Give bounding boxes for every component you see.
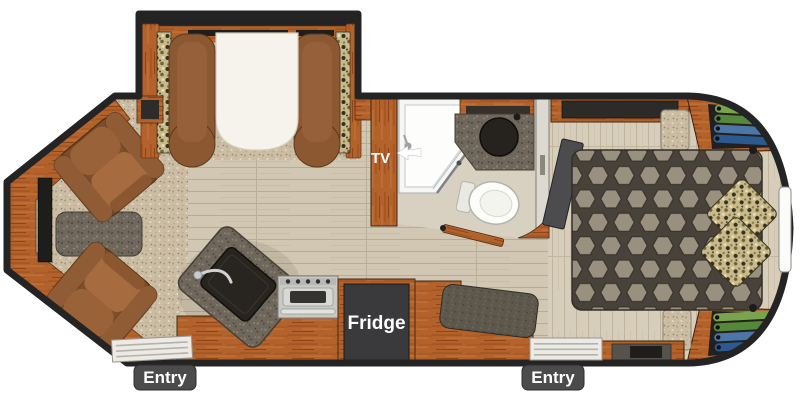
slideout-sofa <box>141 15 361 167</box>
fridge: Fridge <box>338 279 415 363</box>
pocket-wall-handle <box>540 155 545 175</box>
corner-cabinet-left <box>137 96 163 123</box>
rear-console <box>38 178 52 262</box>
entry-badge-right-label: Entry <box>531 368 575 387</box>
sofa-mattress <box>216 33 298 150</box>
entry-threshold-right <box>530 338 602 360</box>
tv-label: TV <box>371 150 390 167</box>
floor-plan-page: Fridge <box>0 0 800 400</box>
bathroom-sink <box>480 118 518 156</box>
interior: Fridge <box>0 15 798 370</box>
door-hinge-icon <box>440 225 446 231</box>
sofa-seat-left <box>169 34 215 167</box>
entry-badge-left-label: Entry <box>143 368 187 387</box>
fridge-label: Fridge <box>347 313 405 334</box>
entry-threshold-left <box>111 336 192 362</box>
sofa-arm-left <box>141 24 159 158</box>
entry-step-cabinet <box>415 281 539 361</box>
entry-badge-right: Entry <box>522 365 584 390</box>
reading-light-icon <box>749 146 757 154</box>
shower-door-handle <box>457 161 462 166</box>
reading-light-icon <box>749 304 757 312</box>
stove <box>278 276 338 318</box>
sofa-seat-right <box>294 34 340 167</box>
bedside-pedestal-top <box>661 110 689 150</box>
floor-plan-svg: Fridge <box>0 0 800 400</box>
front-window <box>779 187 791 272</box>
bathroom-faucet-icon <box>514 114 521 121</box>
entry-badge-left: Entry <box>134 365 196 390</box>
